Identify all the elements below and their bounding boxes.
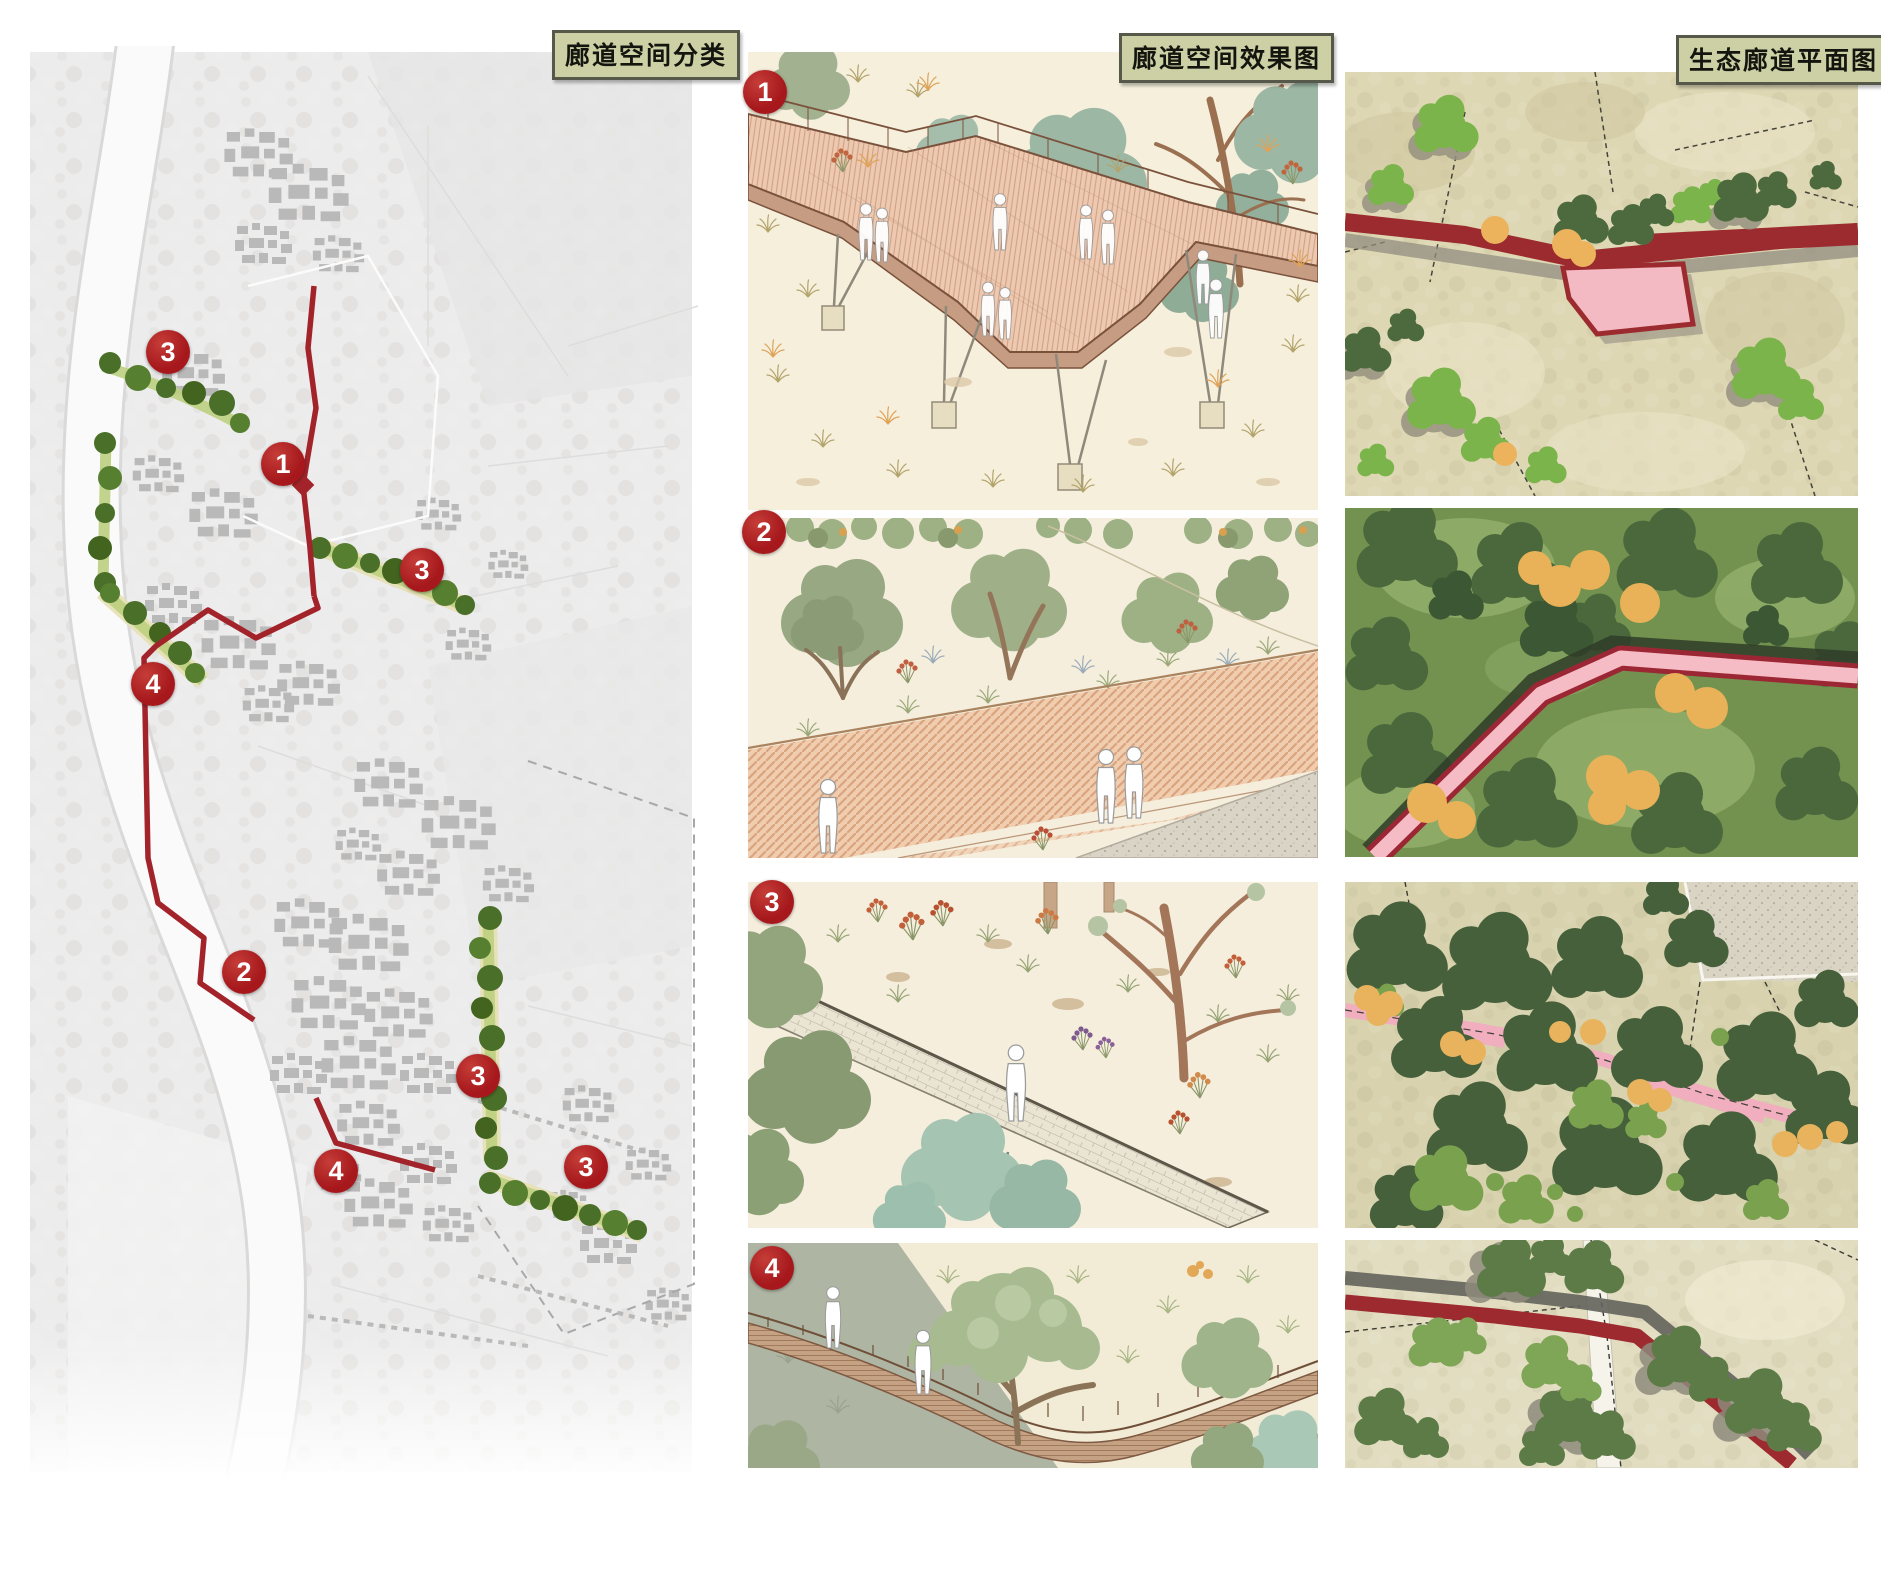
rendering-badge-label: 3 — [764, 887, 779, 918]
map-marker-badge: 3 — [400, 548, 444, 592]
plan-3 — [1345, 882, 1858, 1228]
rendering-badge-label: 2 — [756, 517, 771, 548]
plan-panel-3 — [1345, 882, 1858, 1228]
map-marker-badge: 3 — [456, 1054, 500, 1098]
map-marker-label: 4 — [328, 1156, 343, 1187]
map-marker-badge: 3 — [146, 330, 190, 374]
plan-panel-2 — [1345, 508, 1858, 857]
map-marker-badge: 4 — [314, 1149, 358, 1193]
map-bottom-fade — [8, 1336, 708, 1482]
map-marker-label: 3 — [160, 337, 175, 368]
map-marker-label: 1 — [275, 449, 290, 480]
rendering-badge-3: 3 — [750, 880, 794, 924]
plan-panel-4 — [1345, 1240, 1858, 1468]
rendering-panel-1 — [748, 52, 1318, 510]
design-board: 廊道空间分类 廊道空间效果图 生态廊道平面图 3 1 3 4 2 3 4 3 1… — [0, 0, 1881, 1574]
map-marker-label: 4 — [145, 669, 160, 700]
light-patch — [1685, 1260, 1845, 1340]
map-marker-label: 3 — [414, 555, 429, 586]
plan-title: 生态廊道平面图 — [1676, 35, 1881, 85]
site-plan-map — [8, 46, 708, 1482]
plan-1 — [1345, 72, 1858, 496]
rendering-badge-1: 1 — [743, 70, 787, 114]
renderings-title-label: 廊道空间效果图 — [1132, 45, 1321, 73]
rendering-1-boardwalk — [748, 52, 1318, 510]
classification-title-label: 廊道空间分类 — [565, 42, 727, 70]
map-marker-label: 3 — [470, 1061, 485, 1092]
rendering-3-garden-wall — [748, 882, 1318, 1228]
rendering-panel-2 — [748, 518, 1318, 858]
map-marker-badge: 3 — [564, 1145, 608, 1189]
map-marker-badge: 1 — [261, 442, 305, 486]
rendering-2-slope-path — [748, 518, 1318, 858]
rendering-panel-4 — [748, 1243, 1318, 1468]
plan-2 — [1345, 508, 1858, 857]
rendering-panel-3 — [748, 882, 1318, 1228]
map-marker-badge: 2 — [222, 950, 266, 994]
map-marker-badge: 4 — [131, 662, 175, 706]
rendering-badge-label: 1 — [757, 77, 772, 108]
plan-4 — [1345, 1240, 1858, 1468]
rendering-badge-2: 2 — [742, 510, 786, 554]
plan-title-label: 生态廊道平面图 — [1689, 47, 1878, 75]
site-plan-svg — [8, 46, 708, 1482]
plan-panel-1 — [1345, 72, 1858, 496]
rendering-badge-4: 4 — [750, 1246, 794, 1290]
map-marker-label: 3 — [578, 1152, 593, 1183]
classification-title: 廊道空间分类 — [552, 30, 740, 80]
rendering-badge-label: 4 — [764, 1253, 779, 1284]
rendering-4-ramp — [748, 1243, 1318, 1468]
renderings-title: 廊道空间效果图 — [1119, 33, 1334, 83]
map-marker-label: 2 — [236, 957, 251, 988]
